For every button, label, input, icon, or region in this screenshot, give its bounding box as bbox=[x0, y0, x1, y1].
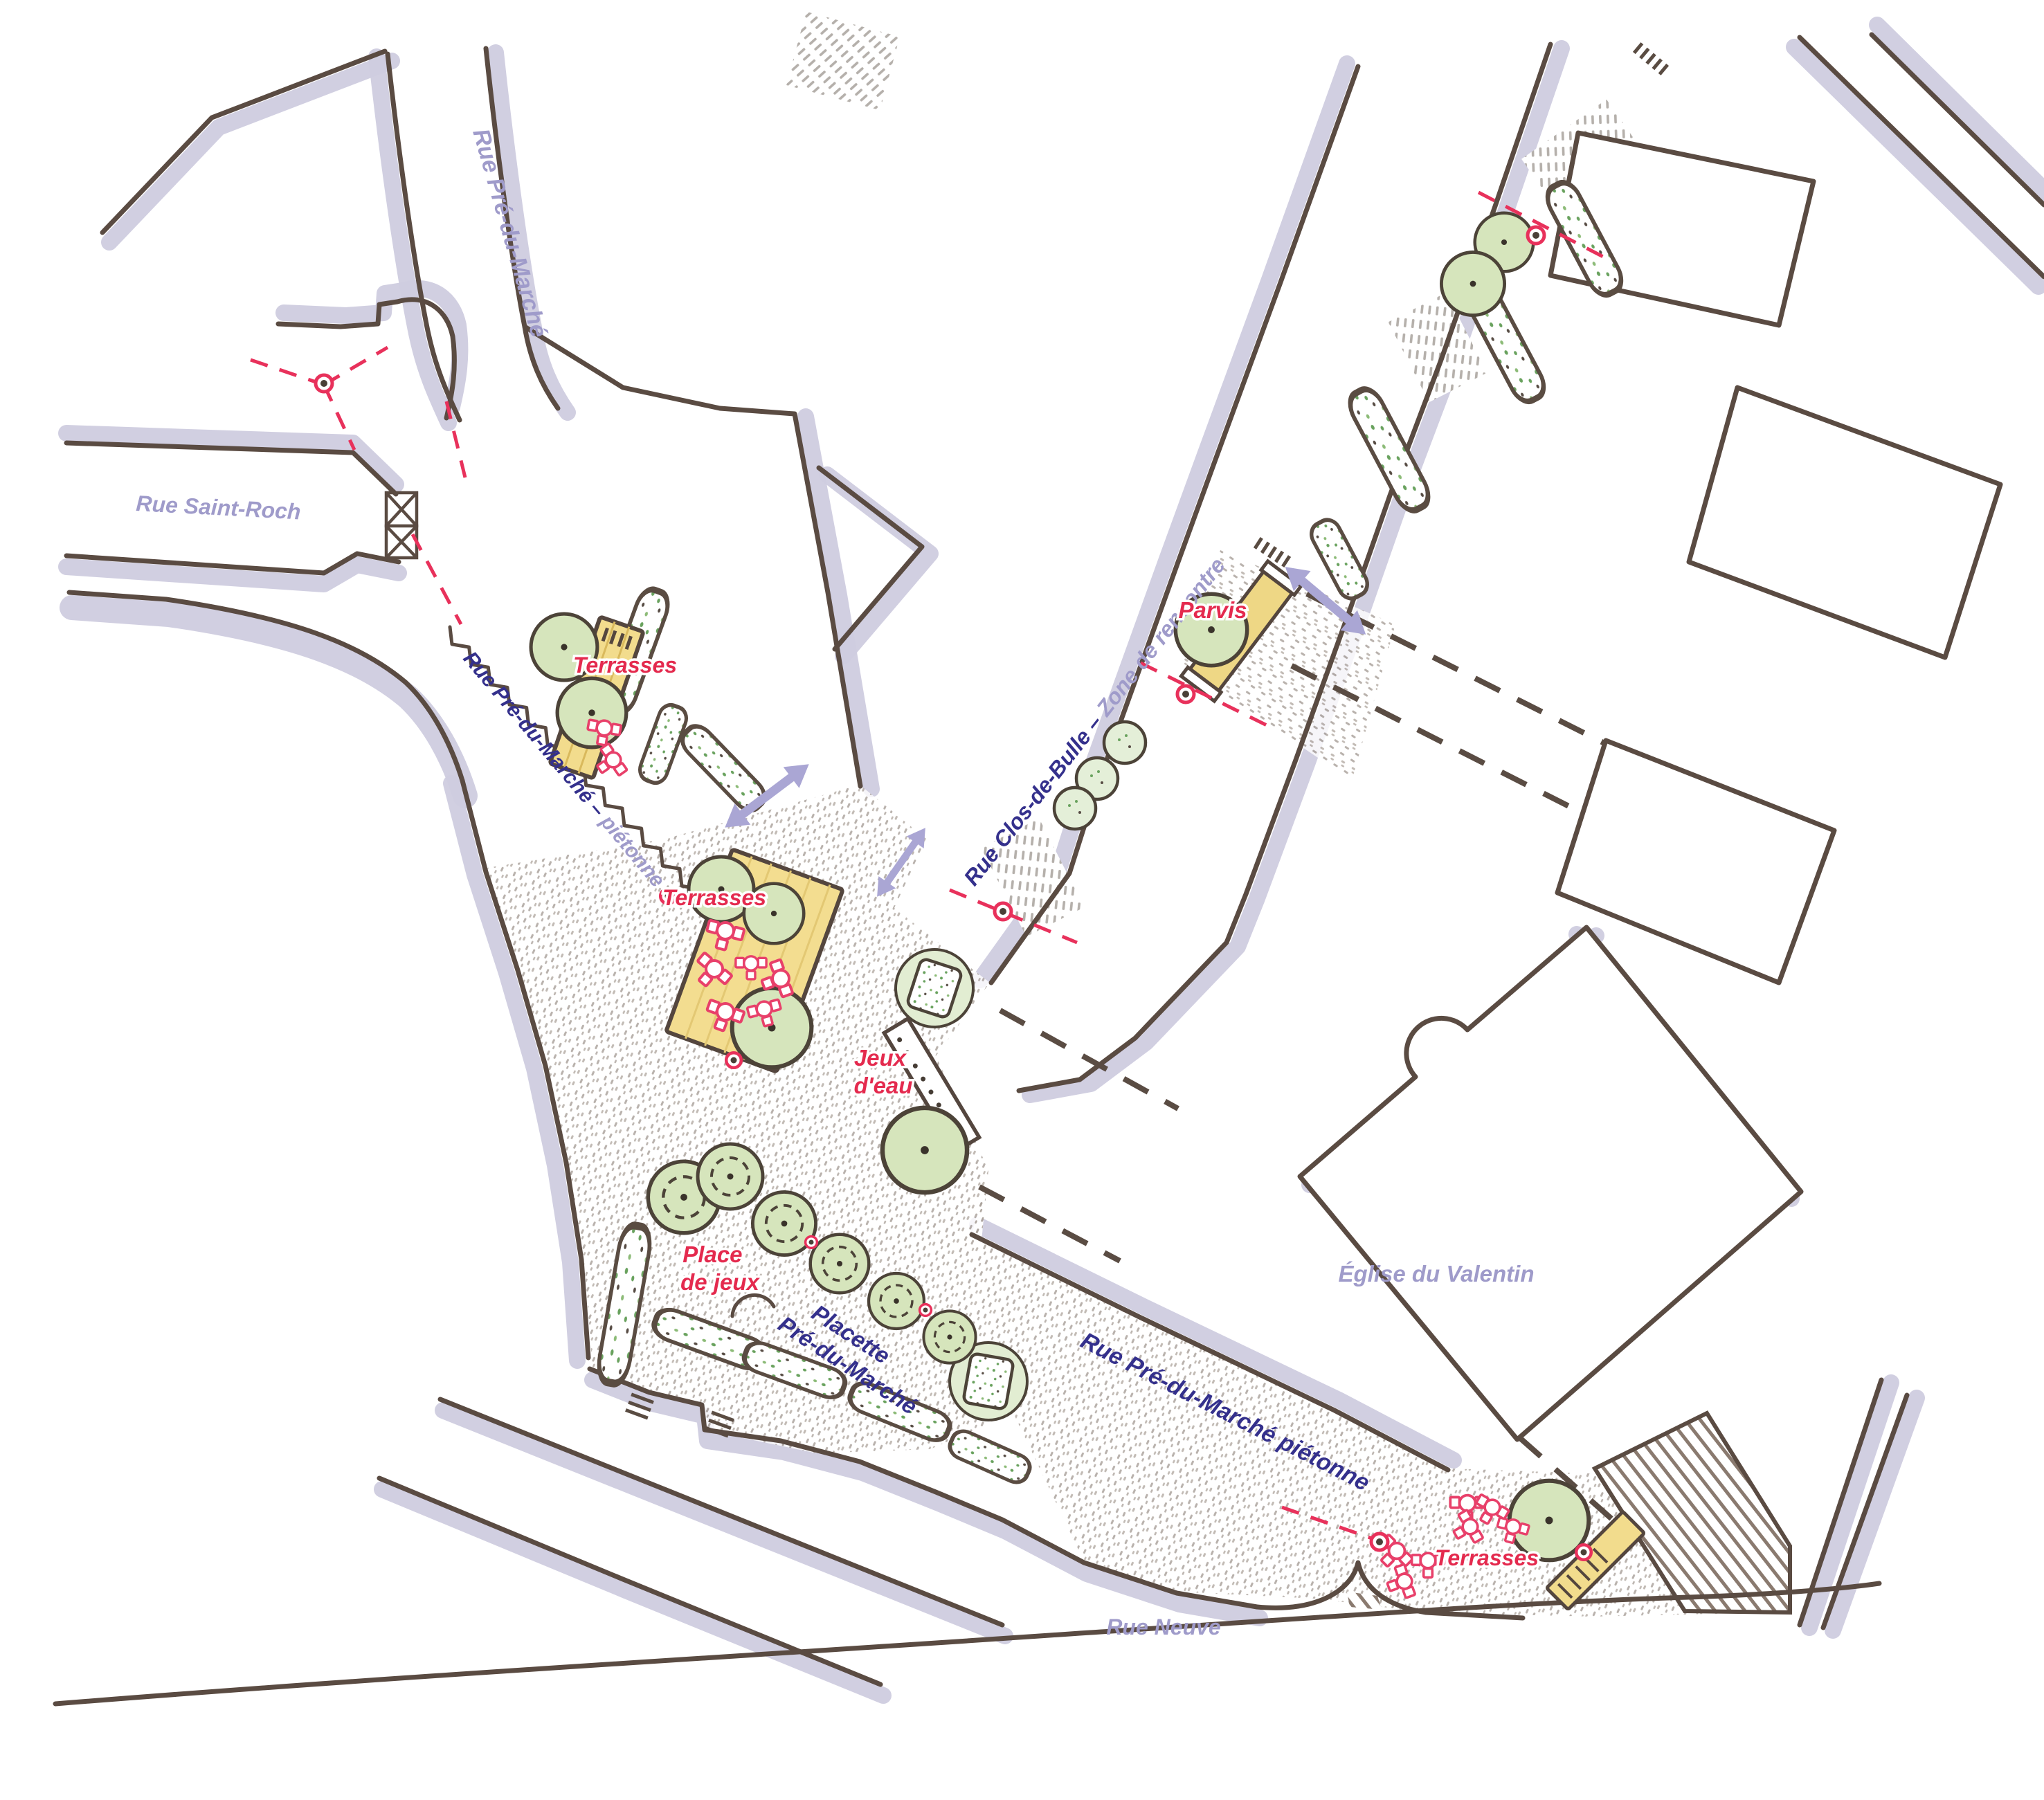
label-terrasses-center: Terrasses bbox=[662, 885, 766, 910]
label-rue-saint-roch: Rue Saint-Roch bbox=[136, 491, 302, 524]
site-plan-page: Rue Pré-du-Marché Rue Saint-Roch Rue Pré… bbox=[0, 0, 2044, 1800]
site-plan-canvas: Rue Pré-du-Marché Rue Saint-Roch Rue Pré… bbox=[0, 0, 2044, 1800]
eglise-building bbox=[1300, 927, 1801, 1439]
label-terrasses-upper: Terrasses bbox=[573, 653, 677, 678]
gate-ticks-parvis bbox=[1255, 538, 1290, 566]
rue-neuve-south-edge bbox=[55, 1583, 1879, 1704]
label-parvis: Parvis bbox=[1178, 597, 1247, 623]
label-eglise-du-valentin: Église du Valentin bbox=[1339, 1261, 1535, 1287]
building-block bbox=[1689, 388, 2000, 657]
passage-x-brace bbox=[386, 493, 417, 558]
label-rue-neuve: Rue Neuve bbox=[1106, 1615, 1220, 1639]
label-terrasses-bottom: Terrasses bbox=[1435, 1545, 1539, 1570]
gate-ticks-top bbox=[1634, 44, 1667, 75]
